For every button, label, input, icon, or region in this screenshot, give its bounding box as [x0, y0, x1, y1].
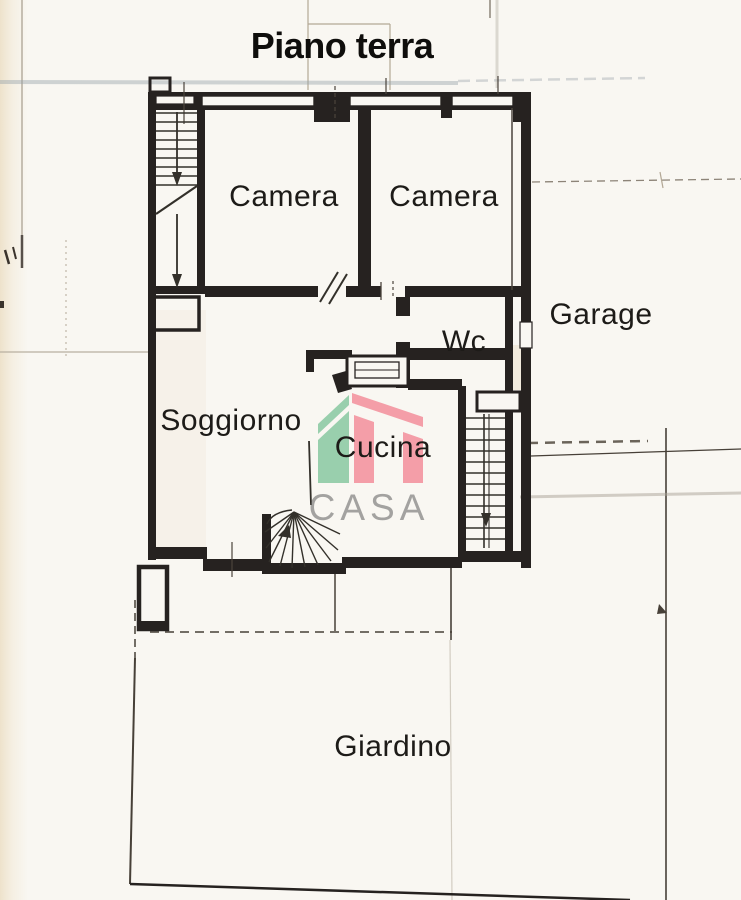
room-label-camera-2: Camera [389, 180, 499, 214]
room-label-cucina: Cucina [335, 431, 431, 465]
room-label-garage: Garage [549, 298, 652, 332]
cucina-window [347, 356, 408, 386]
room-label-soggiorno: Soggiorno [160, 404, 301, 438]
floorplan-page: Piano terra Camera Camera Garage Wc Sogg… [0, 0, 741, 900]
annex-structure [139, 567, 167, 629]
site-lines [130, 428, 741, 900]
internal-stair [153, 112, 199, 330]
watermark-text: CASA [309, 487, 430, 529]
page-title: Piano terra [251, 25, 434, 67]
room-label-wc: Wc [442, 325, 486, 359]
room-label-giardino: Giardino [334, 730, 451, 764]
pen-marks [0, 247, 16, 308]
room-label-camera-1: Camera [229, 180, 339, 214]
